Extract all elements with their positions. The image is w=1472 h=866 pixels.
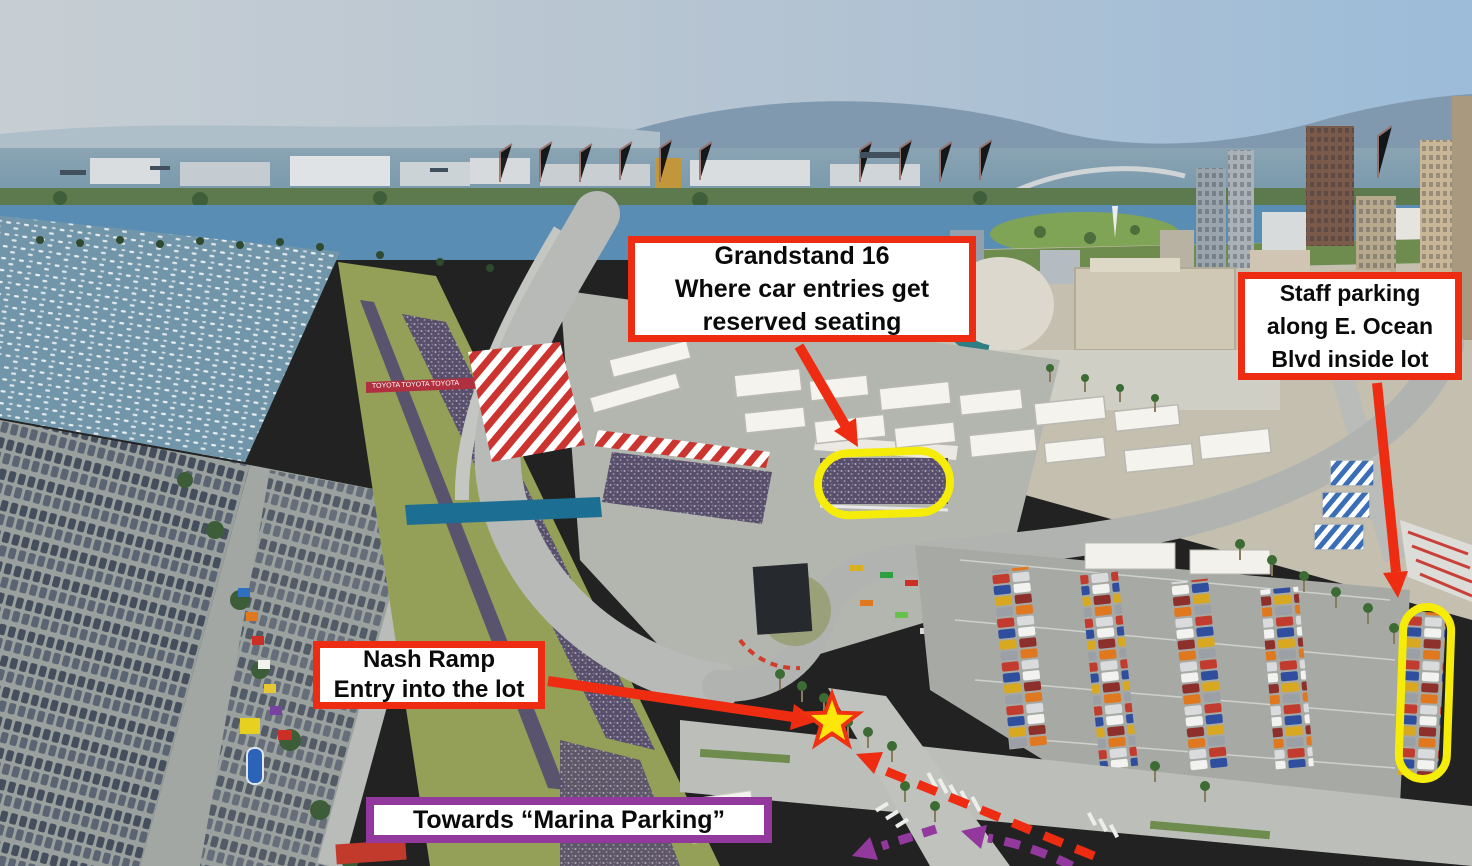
callout-grandstand-16: Grandstand 16 Where car entries get rese…: [628, 236, 976, 342]
callout-grandstand-16-line2: Where car entries get: [675, 273, 929, 306]
nash-ramp-star-icon: [805, 694, 858, 745]
staff-parking-highlight: [1398, 606, 1452, 780]
annotations: [0, 0, 1472, 866]
callout-staff-parking-line1: Staff parking: [1280, 277, 1421, 310]
callout-grandstand-16-line3: reserved seating: [703, 306, 902, 339]
callout-grandstand-16-line1: Grandstand 16: [714, 240, 889, 273]
arrow-nash-ramp-icon: [548, 681, 818, 730]
callout-nash-ramp-line1: Nash Ramp: [363, 645, 495, 675]
callout-nash-ramp: Nash Ramp Entry into the lot: [313, 641, 545, 709]
arrow-staff-parking-icon: [1377, 383, 1408, 598]
aerial-photo-map: TOYOTA TOYOTA TOYOTA: [0, 0, 1472, 866]
callout-marina-parking: Towards “Marina Parking”: [366, 797, 772, 843]
callout-staff-parking-line3: Blvd inside lot: [1271, 343, 1428, 376]
arrow-grandstand-icon: [799, 346, 858, 447]
route-purple-dashed-icon: [852, 825, 1072, 866]
callout-nash-ramp-line2: Entry into the lot: [334, 675, 525, 705]
callout-staff-parking-line2: along E. Ocean: [1267, 310, 1433, 343]
callout-staff-parking: Staff parking along E. Ocean Blvd inside…: [1238, 272, 1462, 380]
grandstand-16-highlight: [817, 450, 951, 517]
callout-marina-parking-text: Towards “Marina Parking”: [413, 805, 725, 835]
